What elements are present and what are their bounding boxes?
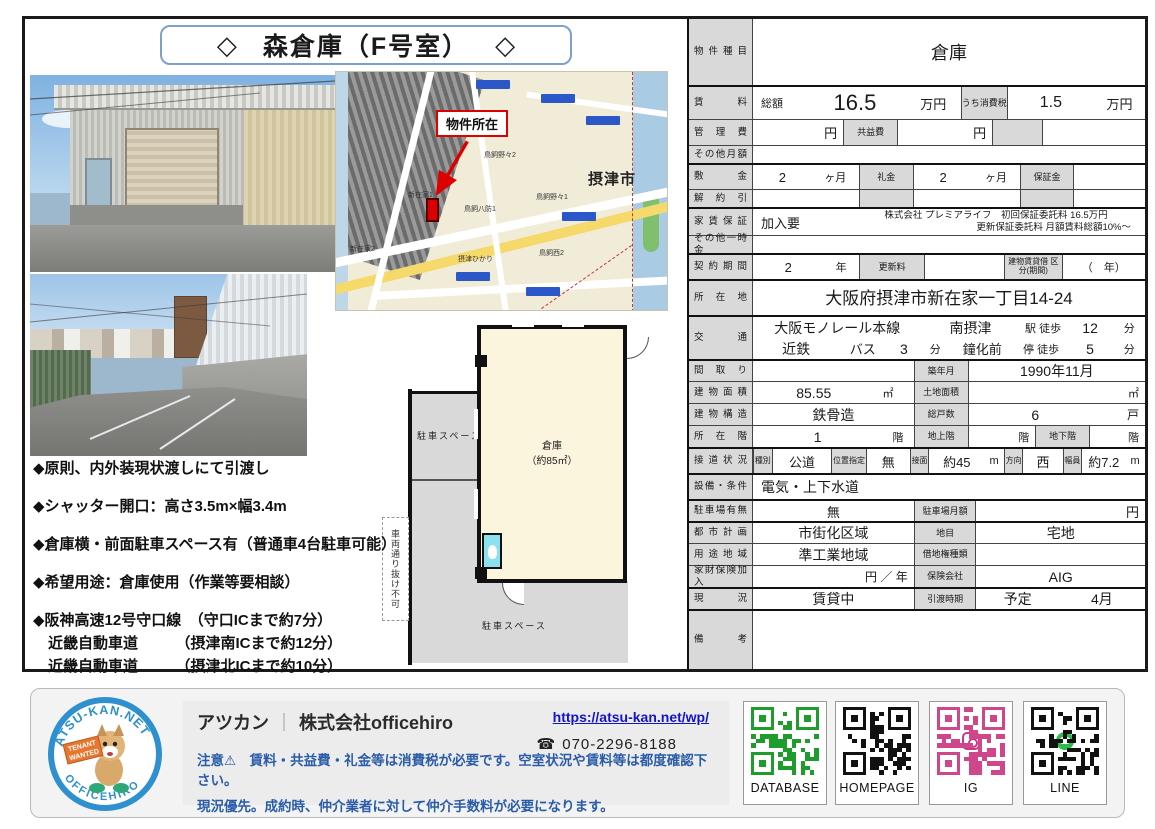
empty-cell	[859, 190, 914, 207]
no-through-traffic-label: 車両通り抜け不可	[382, 517, 409, 621]
label-cell: 建物構造	[689, 404, 753, 425]
toilet-icon	[488, 545, 497, 559]
map-area-label: 鳥飼野々1	[536, 192, 568, 202]
key-money-label: 礼金	[859, 165, 914, 189]
hoshokin-label: 保証金	[1020, 165, 1075, 189]
main-frame: ◇ 森倉庫（F号室） ◇	[22, 16, 1148, 672]
empty-cell	[1074, 165, 1145, 189]
qr-label: HOMEPAGE	[839, 781, 914, 795]
access2-bus-unit: 分	[922, 338, 949, 359]
guarantee-notes: 株式会社 プレミアライフ 初回保証委託料 16.5万円 更新保証委託料 月額賃料…	[847, 209, 1145, 235]
below-ground-unit: 階	[1090, 426, 1145, 447]
row-rent-guarantee: 家賃保証 加入要 株式会社 プレミアライフ 初回保証委託料 16.5万円 更新保…	[689, 207, 1145, 235]
row-zoning: 用途地域 準工業地域 借地権種類	[689, 543, 1145, 565]
label-cell: 備考	[689, 611, 753, 669]
deposit-unit: ヶ月	[812, 165, 859, 189]
access2-walk-label: 停 徒歩	[1016, 338, 1067, 359]
label-cell: 接道状況	[689, 449, 753, 473]
note-line: 近畿自動車道 （摂津南ICまで約12分）	[33, 632, 358, 653]
label-cell: 所在地	[689, 281, 753, 315]
label-cell: 交通	[689, 317, 753, 359]
row-other-onetime: その他一時金	[689, 235, 1145, 253]
access-line-1: 大阪モノレール本線 南摂津 駅 徒歩 12 分	[753, 317, 1145, 338]
phone-value: 070-2296-8188	[562, 736, 677, 753]
empty-cell	[1020, 190, 1075, 207]
insurance-unit: 円 ／ 年	[753, 566, 914, 587]
label-cell: 建物面積	[689, 382, 753, 403]
above-ground-unit: 階	[969, 426, 1036, 447]
map-area-label: 摂津ひかり	[458, 254, 493, 264]
label-cell: 都市計画	[689, 523, 753, 543]
total-units-unit: 戸	[1102, 404, 1145, 425]
guarantee-note-2: 更新保証委託料 月額賃料総額10%～	[847, 222, 1145, 234]
empty-cell	[992, 120, 1043, 145]
road-type-label: 種別	[753, 449, 773, 473]
lease-type-label: 建物賃貸借 区分(期間)	[1004, 255, 1063, 279]
structure-value: 鉄骨造	[753, 404, 914, 425]
row-deposit: 敷金 2 ヶ月 礼金 2 ヶ月 保証金	[689, 163, 1145, 189]
common-fee-unit: 円	[898, 120, 992, 145]
photo-roof-band	[54, 85, 335, 111]
below-ground-label: 地下階	[1035, 426, 1090, 447]
disclaimer-line-1: 注意⚠ 賃料・共益費・礼金等は消費税が必要です。空室状況や賃料等は都度確認下さい…	[197, 749, 715, 789]
guarantee-value: 加入要	[753, 209, 847, 235]
tax-unit: 万円	[1094, 87, 1145, 119]
plan-wall-opening	[562, 323, 584, 327]
map-road-label-chip	[562, 212, 596, 221]
lease-type-value: （ 年）	[1063, 255, 1145, 279]
deposit-value: 2	[753, 165, 812, 189]
qr-card-line: LINE	[1023, 701, 1107, 805]
property-notes: ◆原則、内外装現状渡しにて引渡し ◆シャッター開口：高さ3.5m×幅3.4m ◆…	[33, 457, 358, 676]
plan-toilet	[482, 533, 502, 569]
footer-bar: ATSU-KAN.NET OFFICEHIRO TENANT WA	[30, 688, 1125, 818]
plan-parking-top	[412, 391, 477, 581]
road-direction-label: 方向	[1004, 449, 1024, 473]
row-equipment: 設備・条件 電気・上下水道	[689, 473, 1145, 499]
photo-parking-area	[30, 274, 307, 456]
built-date-value: 1990年11月	[969, 361, 1145, 381]
tax-label: うち消費税	[961, 87, 1008, 119]
access2-minutes: 5	[1067, 338, 1114, 359]
access2-stop: 鐘化前	[949, 338, 1016, 359]
road-width-value: 約7.2	[1082, 449, 1125, 473]
access2-bus-minutes: 3	[886, 338, 921, 359]
homepage-link[interactable]: https://atsu-kan.net/wp/	[553, 709, 709, 725]
property-spec-table: 物件種目 倉庫 賃料 総額 16.5 万円 うち消費税 1.5 万円 管理費 円	[687, 19, 1145, 669]
room-name: 倉庫	[542, 441, 562, 452]
plan-wall-notch	[475, 355, 487, 367]
company-logo: ATSU-KAN.NET OFFICEHIRO TENANT WA	[47, 696, 163, 812]
qr-card-homepage: HOMEPAGE	[835, 701, 919, 805]
rent-value: 16.5	[804, 87, 906, 119]
total-units-label: 総戸数	[914, 404, 969, 425]
handover-label: 引渡時期	[914, 589, 977, 609]
label-cell: 設備・条件	[689, 475, 753, 499]
photo-ground	[30, 225, 335, 272]
map-city-label: 摂津市	[588, 168, 636, 189]
term-value: 2	[753, 255, 824, 279]
access2-unit: 分	[1114, 338, 1145, 359]
logo-badge: ATSU-KAN.NET OFFICEHIRO TENANT WA	[47, 696, 163, 812]
rent-total-label: 総額	[753, 87, 804, 119]
instagram-qr-icon	[937, 707, 1005, 775]
plan-wall-opening	[512, 323, 534, 327]
note-line: ◆希望用途：倉庫使用（作業等要相談）	[33, 571, 358, 592]
access1-unit: 分	[1114, 317, 1145, 338]
access2-line: 近鉄	[753, 338, 839, 359]
map-area-label: 鳥飼八防1	[464, 204, 496, 214]
floor-unit: 階	[882, 426, 913, 447]
value-property-type: 倉庫	[753, 19, 1145, 85]
road-frontage-label: 接面	[910, 449, 930, 473]
phone-number: ☎070-2296-8188	[537, 735, 677, 753]
key-money-unit: ヶ月	[973, 165, 1020, 189]
row-access: 交通 大阪モノレール本線 南摂津 駅 徒歩 12 分 近鉄 バス 3 分 鐘	[689, 315, 1145, 359]
plan-door-arc-top	[627, 337, 649, 359]
map-road-label-chip	[456, 272, 490, 281]
empty-cell	[753, 190, 859, 207]
property-location-callout: 物件所在	[436, 110, 508, 137]
label-cell: 解約引	[689, 190, 753, 207]
equipment-value: 電気・上下水道	[753, 475, 1145, 499]
property-title-box: ◇ 森倉庫（F号室） ◇	[160, 25, 572, 65]
parking-bottom-label: 駐車スペース	[482, 619, 547, 632]
map-road-label-chip	[541, 94, 575, 103]
term-unit: 年	[824, 255, 859, 279]
row-rent: 賃料 総額 16.5 万円 うち消費税 1.5 万円	[689, 85, 1145, 119]
photo-warehouse-front	[30, 75, 335, 272]
parking-fee-label: 駐車場月額	[914, 501, 977, 521]
parking-fee-unit: 円	[976, 501, 1145, 521]
access1-line: 大阪モノレール本線	[753, 317, 922, 338]
row-layout: 間取り 築年月 1990年11月	[689, 359, 1145, 381]
land-category-value: 宅地	[976, 523, 1145, 543]
empty-cell	[925, 255, 1003, 279]
page-title: 森倉庫（F号室）	[263, 27, 469, 63]
city-planning-value: 市街化区域	[753, 523, 914, 543]
empty-cell	[969, 382, 1102, 403]
label-cell: 家財保険加入	[689, 566, 753, 587]
road-frontage-unit: m	[984, 449, 1004, 473]
renewal-fee-label: 更新料	[859, 255, 926, 279]
floor-plan: 駐車スペース 駐車スペース 倉庫 （約85㎡） 車両通り抜け不可	[362, 319, 668, 669]
plan-wall-opening	[474, 409, 478, 439]
empty-cell	[914, 190, 1020, 207]
insurer-value: AIG	[976, 566, 1145, 587]
remarks-value	[753, 611, 1145, 669]
map-area-label: 鳥飼野々2	[484, 150, 516, 160]
empty-cell	[976, 544, 1145, 565]
row-road-access: 接道状況 種別 公道 位置指定 無 接面 約45 m 方向 西 幅員 約7.2 …	[689, 447, 1145, 473]
access1-station: 南摂津	[922, 317, 1020, 338]
note-line: ◆シャッター開口：高さ3.5m×幅3.4m	[33, 495, 358, 516]
access-line-2: 近鉄 バス 3 分 鐘化前 停 徒歩 5 分	[753, 338, 1145, 359]
label-cell: その他月額	[689, 146, 753, 163]
qr-label: IG	[964, 781, 978, 795]
row-management-fee: 管理費 円 共益費 円	[689, 119, 1145, 145]
row-building-area: 建物面積 85.55 ㎡ 土地面積 ㎡	[689, 381, 1145, 403]
qr-card-database: DATABASE	[743, 701, 827, 805]
map-canal	[336, 72, 348, 310]
row-parking: 駐車場有無 無 駐車場月額 円	[689, 499, 1145, 521]
label-cell: 用途地域	[689, 544, 753, 565]
map-area-label: 鳥飼西2	[539, 248, 564, 258]
photo-asphalt	[30, 387, 307, 456]
row-property-type: 物件種目 倉庫	[689, 19, 1145, 85]
leasehold-label: 借地権種類	[914, 544, 977, 565]
label-cell: 間取り	[689, 361, 753, 381]
plan-parking-divider	[412, 479, 477, 481]
homepage-qr-icon	[843, 707, 911, 775]
land-area-unit: ㎡	[1102, 382, 1145, 403]
plan-wall-opening	[474, 489, 478, 519]
row-contract-term: 契約期間 2 年 更新料 建物賃貸借 区分(期間) （ 年）	[689, 253, 1145, 279]
map-area-label: 新在家2	[350, 244, 375, 254]
parking-top-label: 駐車スペース	[417, 429, 482, 442]
key-money-value: 2	[914, 165, 973, 189]
row-current-status: 現況 賃貸中 引渡時期 予定 4月	[689, 587, 1145, 609]
guarantee-note-1: 株式会社 プレミアライフ 初回保証委託料 16.5万円	[847, 210, 1145, 222]
building-area-value: 85.55	[753, 382, 875, 403]
access1-minutes: 12	[1067, 317, 1114, 338]
photo-side-wall	[244, 110, 336, 228]
flyer-sheet: ◇ 森倉庫（F号室） ◇	[0, 0, 1155, 829]
label-cell: 契約期間	[689, 255, 753, 279]
qr-card-instagram: IG	[929, 701, 1013, 805]
empty-cell	[1074, 190, 1145, 207]
label-cell: 駐車場有無	[689, 501, 753, 521]
row-other-monthly: その他月額	[689, 145, 1145, 163]
map-road-label-chip	[476, 80, 510, 89]
phone-icon: ☎	[537, 736, 557, 753]
road-position-label: 位置指定	[831, 449, 866, 473]
label-cell: 現況	[689, 589, 753, 609]
row-city-planning: 都市計画 市街化区域 地目 宅地	[689, 521, 1145, 543]
empty-cell	[753, 146, 1145, 163]
database-qr-icon	[751, 707, 819, 775]
row-remarks: 備考	[689, 609, 1145, 669]
road-position-value: 無	[867, 449, 910, 473]
mgmt-unit: 円	[753, 120, 843, 145]
building-area-unit: ㎡	[875, 382, 914, 403]
map-road-label-chip	[526, 287, 560, 296]
qr-label: DATABASE	[751, 781, 820, 795]
row-floor: 所在階 1 階 地上階 階 地下階 階	[689, 425, 1145, 447]
note-line: ◆倉庫横・前面駐車スペース有（普通車4台駐車可能）	[33, 533, 358, 554]
access2-mode: バス	[839, 338, 886, 359]
diamond-icon: ◇	[495, 30, 515, 61]
label-cell: 物件種目	[689, 19, 753, 85]
access1-walk-label: 駅 徒歩	[1020, 317, 1067, 338]
row-insurance: 家財保険加入 円 ／ 年 保険会社 AIG	[689, 565, 1145, 587]
handover-month: 4月	[1059, 589, 1145, 609]
zoning-value: 準工業地域	[753, 544, 914, 565]
status-value: 賃貸中	[753, 589, 914, 609]
empty-cell	[753, 361, 914, 381]
label-cell: 所在階	[689, 426, 753, 447]
address-value: 大阪府摂津市新在家一丁目14-24	[753, 281, 1145, 315]
label-cell: 家賃保証	[689, 209, 753, 235]
label-cell: 賃料	[689, 87, 753, 119]
brand-name: アツカン	[197, 713, 269, 733]
road-width-unit: m	[1125, 449, 1145, 473]
note-line: 近畿自動車道 （摂津北ICまで約10分）	[33, 655, 358, 676]
row-address: 所在地 大阪府摂津市新在家一丁目14-24	[689, 279, 1145, 315]
total-units-value: 6	[969, 404, 1102, 425]
built-date-label: 築年月	[914, 361, 969, 381]
road-type-value: 公道	[773, 449, 832, 473]
common-fee-label: 共益費	[843, 120, 898, 145]
land-area-label: 土地面積	[914, 382, 969, 403]
label-cell: その他一時金	[689, 236, 753, 253]
insurer-label: 保険会社	[914, 566, 977, 587]
property-location-marker	[426, 198, 439, 222]
rent-unit: 万円	[906, 87, 961, 119]
line-qr-icon	[1031, 707, 1099, 775]
location-map: 新在家1 新在家2 鳥飼八防1 鳥飼野々2 鳥飼野々1 鳥飼西2 摂津ひかり 摂…	[335, 71, 668, 311]
label-cell: 敷金	[689, 165, 753, 189]
floor-value: 1	[753, 426, 882, 447]
label-cell: 管理費	[689, 120, 753, 145]
company-legal-name: 株式会社officehiro	[299, 713, 453, 733]
warehouse-room-label: 倉庫 （約85㎡）	[481, 439, 623, 469]
road-direction-value: 西	[1023, 449, 1062, 473]
empty-cell	[753, 236, 1145, 253]
qr-label: LINE	[1050, 781, 1080, 795]
map-boundary	[632, 72, 633, 311]
road-width-label: 幅員	[1063, 449, 1083, 473]
empty-cell	[1043, 120, 1145, 145]
above-ground-label: 地上階	[914, 426, 969, 447]
brand-separator: ｜	[269, 713, 299, 733]
diamond-icon: ◇	[217, 30, 237, 61]
row-cancellation: 解約引	[689, 189, 1145, 207]
agency-info-panel: アツカン｜株式会社officehiro https://atsu-kan.net…	[183, 701, 729, 805]
land-category-label: 地目	[914, 523, 977, 543]
road-frontage-value: 約45	[929, 449, 984, 473]
tax-value: 1.5	[1008, 87, 1094, 119]
room-area: （約85㎡）	[526, 456, 577, 467]
note-line: ◆阪神高速12号守口線 （守口ICまで約7分）	[33, 609, 358, 630]
row-structure: 建物構造 鉄骨造 総戸数 6 戸	[689, 403, 1145, 425]
disclaimer-line-2: 現況優先。成約時、仲介業者に対して仲介手数料が必要になります。	[197, 795, 715, 815]
handover-plan: 予定	[976, 589, 1058, 609]
map-road-label-chip	[586, 116, 620, 125]
note-line: ◆原則、内外装現状渡しにて引渡し	[33, 457, 358, 478]
parking-value: 無	[753, 501, 914, 521]
